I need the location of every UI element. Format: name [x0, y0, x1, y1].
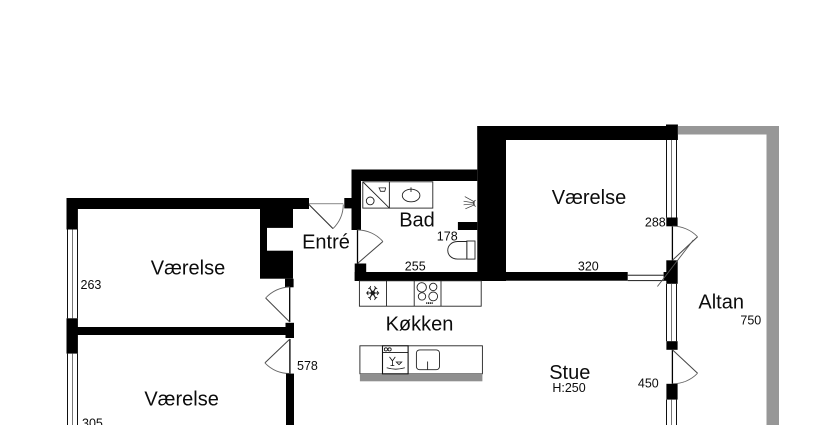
- svg-text:288: 288: [645, 215, 666, 229]
- svg-text:263: 263: [81, 278, 102, 292]
- svg-text:Bad: Bad: [399, 210, 435, 232]
- svg-text:450: 450: [638, 377, 659, 391]
- svg-text:305: 305: [82, 417, 103, 425]
- svg-text:Altan: Altan: [698, 291, 744, 313]
- svg-text:578: 578: [297, 359, 318, 373]
- svg-text:Entré: Entré: [302, 231, 350, 253]
- svg-text:178: 178: [437, 229, 458, 243]
- svg-text:Værelse: Værelse: [552, 187, 626, 209]
- svg-text:255: 255: [405, 259, 426, 273]
- svg-text:Værelse: Værelse: [151, 257, 225, 279]
- svg-text:H:250: H:250: [552, 381, 585, 395]
- svg-text:Køkken: Køkken: [386, 314, 454, 336]
- svg-text:320: 320: [578, 260, 599, 274]
- svg-text:750: 750: [740, 314, 761, 328]
- svg-text:Værelse: Værelse: [144, 389, 218, 411]
